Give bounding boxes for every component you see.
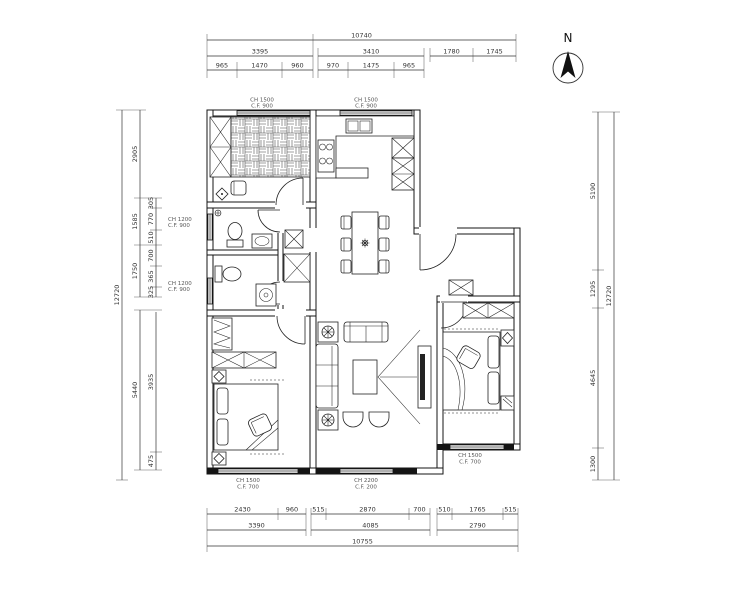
toilet-tank — [227, 240, 243, 247]
dim-label: 3390 — [248, 522, 265, 530]
window-label: C.F. 900 — [251, 104, 273, 110]
dim-label: 965 — [216, 62, 228, 70]
dining-chair — [379, 260, 389, 273]
pillow — [488, 372, 499, 404]
door-tatami — [276, 178, 303, 205]
dim-label: 2870 — [359, 506, 376, 514]
tv-sightlines — [378, 330, 420, 424]
dim-label: 1475 — [363, 62, 380, 70]
dim-label: 965 — [403, 62, 415, 70]
bathroom-upper — [215, 210, 272, 248]
window-label: C.F. 200 — [355, 485, 377, 491]
dim-label: 305 — [147, 197, 155, 209]
dim-label: 5190 — [589, 183, 597, 200]
dim-label: 515 — [312, 506, 324, 514]
dim-right-overall: 12720 — [605, 286, 613, 307]
kitchen-peninsula — [336, 168, 368, 178]
dim-label: 325 — [147, 286, 155, 298]
dim-label: 700 — [147, 249, 155, 261]
room-bedroom-right — [443, 303, 514, 413]
toilet-tank — [215, 266, 222, 282]
north-needle — [561, 51, 576, 78]
dim-label: 770 — [147, 213, 155, 225]
dim-label: 2430 — [234, 506, 251, 514]
window-label: CH 1500 — [236, 478, 260, 484]
dim-bottom-overall: 10755 — [352, 538, 373, 546]
dim-label: 960 — [286, 506, 298, 514]
dim-label: 365 — [147, 270, 155, 282]
dim-label: 2790 — [469, 522, 486, 530]
wardrobe — [463, 303, 514, 318]
room-kitchen — [316, 116, 414, 190]
dim-label: 1750 — [131, 263, 139, 280]
door-bedroom-left — [277, 316, 305, 344]
toilet — [223, 267, 241, 281]
floor-plan-drawing: 10740 3395 3410 1780 1745 965 1470 960 9… — [0, 0, 740, 592]
dining-chair — [341, 216, 351, 229]
dining-chair — [379, 238, 389, 251]
pillow — [217, 419, 228, 445]
dining-chair — [341, 238, 351, 251]
window-label: C.F. 900 — [168, 287, 190, 293]
dim-label: 4645 — [589, 370, 597, 387]
dim-label: 1780 — [443, 48, 460, 56]
dim-left-overall: 12720 — [113, 285, 121, 306]
north-label: N — [564, 31, 573, 45]
dim-label: 1470 — [251, 62, 268, 70]
dim-label: 1585 — [131, 213, 139, 230]
window-label: CH 2200 — [354, 478, 378, 484]
dim-label: 510 — [147, 231, 155, 243]
door-entry — [420, 234, 456, 270]
foyer — [449, 280, 473, 295]
door-bath-upper — [258, 210, 280, 232]
toilet — [228, 223, 242, 240]
washing-machine — [256, 284, 276, 306]
room-living — [316, 322, 431, 430]
tatami-mat — [231, 117, 310, 177]
dim-top-overall: 10740 — [351, 32, 372, 40]
sofa — [316, 344, 338, 408]
dim-label: 700 — [413, 506, 425, 514]
coffee-table — [353, 360, 377, 394]
bath-lobby — [284, 230, 310, 282]
dim-label: 4085 — [362, 522, 379, 530]
window-label: C.F. 900 — [355, 104, 377, 110]
dim-label: 3395 — [252, 48, 269, 56]
dining-chair — [341, 260, 351, 273]
window-label: C.F. 700 — [237, 485, 259, 491]
dining-set — [341, 212, 389, 274]
window-label: C.F. 900 — [168, 223, 190, 229]
room-bedroom-left — [212, 318, 285, 465]
dim-label: 475 — [147, 455, 155, 467]
dim-label: 510 — [438, 506, 450, 514]
dim-label: 970 — [327, 62, 339, 70]
tv — [420, 354, 425, 400]
dim-label: 1765 — [469, 506, 486, 514]
north-arrow: N — [553, 31, 583, 83]
dim-label: 2905 — [131, 146, 139, 163]
dim-label: 1300 — [589, 456, 597, 473]
tub-chair — [369, 412, 389, 427]
floor-plan-page: 10740 3395 3410 1780 1745 965 1470 960 9… — [0, 0, 740, 592]
pillow — [217, 388, 228, 414]
dim-label: 3410 — [363, 48, 380, 56]
dim-label: 1745 — [486, 48, 503, 56]
room-tatami — [210, 117, 310, 200]
dim-label: 960 — [291, 62, 303, 70]
dim-label: 3935 — [147, 374, 155, 391]
window-label: CH 1500 — [458, 453, 482, 459]
bathroom-lower — [215, 266, 276, 306]
dining-chair — [379, 216, 389, 229]
desk-chair — [231, 181, 246, 195]
pillow — [488, 336, 499, 368]
window-label: C.F. 700 — [459, 460, 481, 466]
dim-label: 1295 — [589, 281, 597, 298]
dim-label: 515 — [504, 506, 516, 514]
dim-label: 5440 — [131, 382, 139, 399]
tub-chair — [343, 412, 363, 427]
